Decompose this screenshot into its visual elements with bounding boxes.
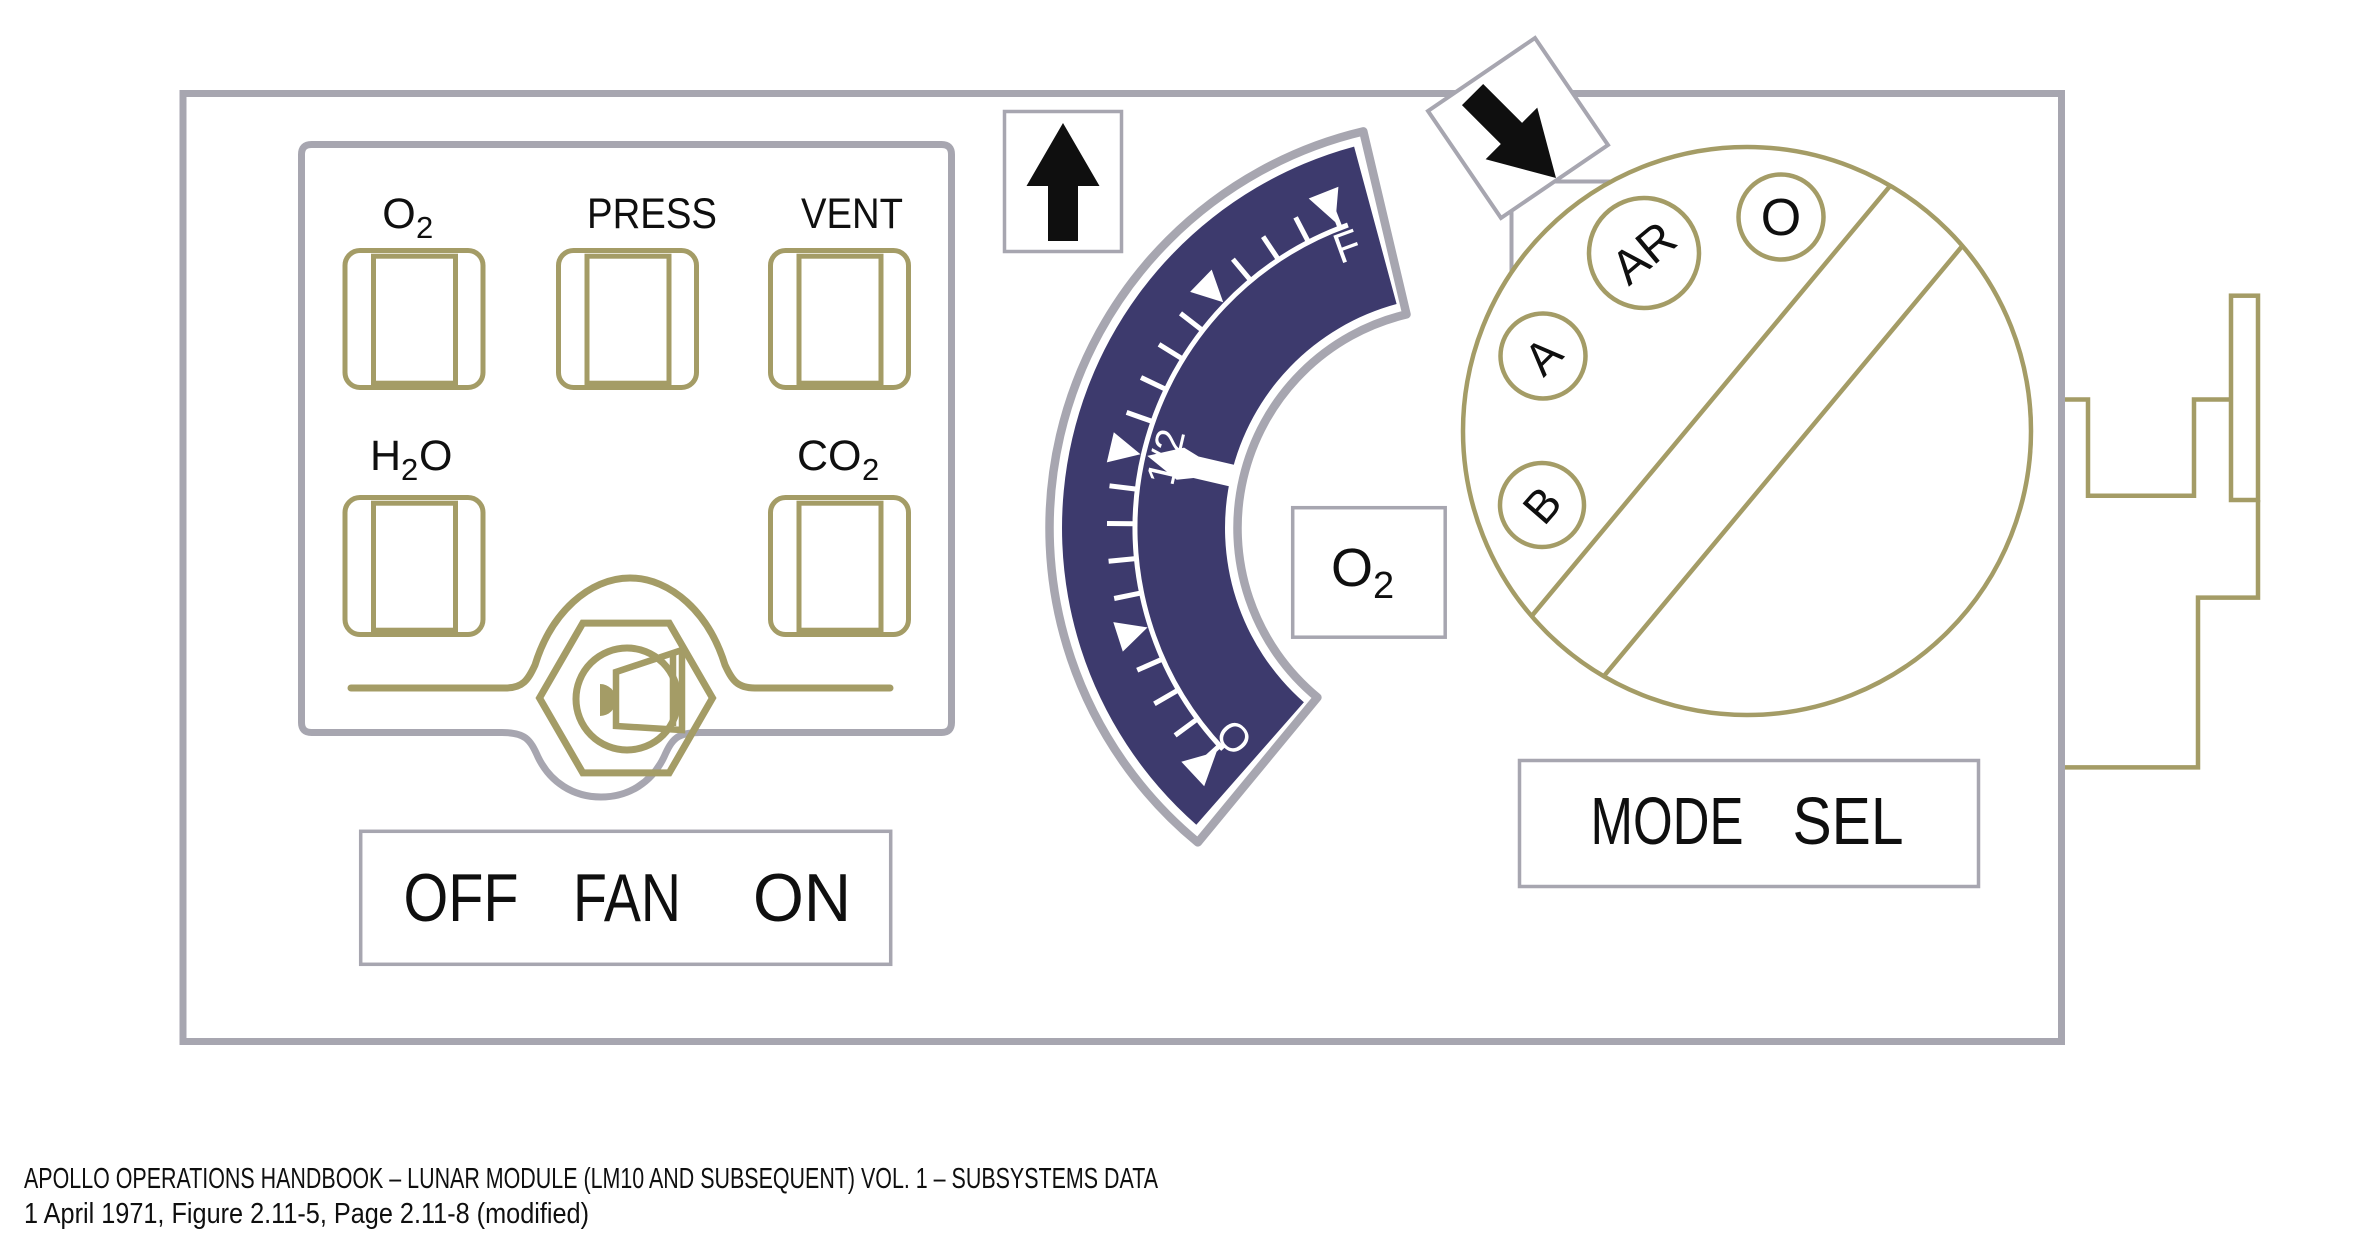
svg-text:O: O: [1331, 538, 1373, 598]
svg-text:H: H: [370, 432, 401, 480]
svg-text:O: O: [419, 432, 452, 480]
svg-text:SEL: SEL: [1793, 784, 1904, 859]
svg-text:2: 2: [416, 210, 433, 245]
svg-text:PRESS: PRESS: [587, 190, 717, 238]
svg-text:O: O: [382, 190, 415, 238]
svg-text:1 April 1971, Figure 2.11-5, P: 1 April 1971, Figure 2.11-5, Page 2.11-8…: [24, 1198, 589, 1230]
svg-text:O: O: [1761, 189, 1801, 247]
svg-text:OFF: OFF: [404, 860, 519, 936]
svg-text:O: O: [828, 432, 861, 480]
svg-text:ON: ON: [753, 860, 851, 936]
svg-text:VENT: VENT: [801, 190, 903, 238]
svg-text:C: C: [797, 432, 828, 480]
svg-text:2: 2: [1373, 565, 1394, 607]
svg-text:2: 2: [862, 452, 879, 487]
svg-text:APOLLO OPERATIONS HANDBOOK – L: APOLLO OPERATIONS HANDBOOK – LUNAR MODUL…: [24, 1163, 1158, 1195]
svg-text:2: 2: [401, 452, 418, 487]
svg-text:MODE: MODE: [1591, 784, 1744, 859]
svg-text:FAN: FAN: [573, 860, 681, 936]
